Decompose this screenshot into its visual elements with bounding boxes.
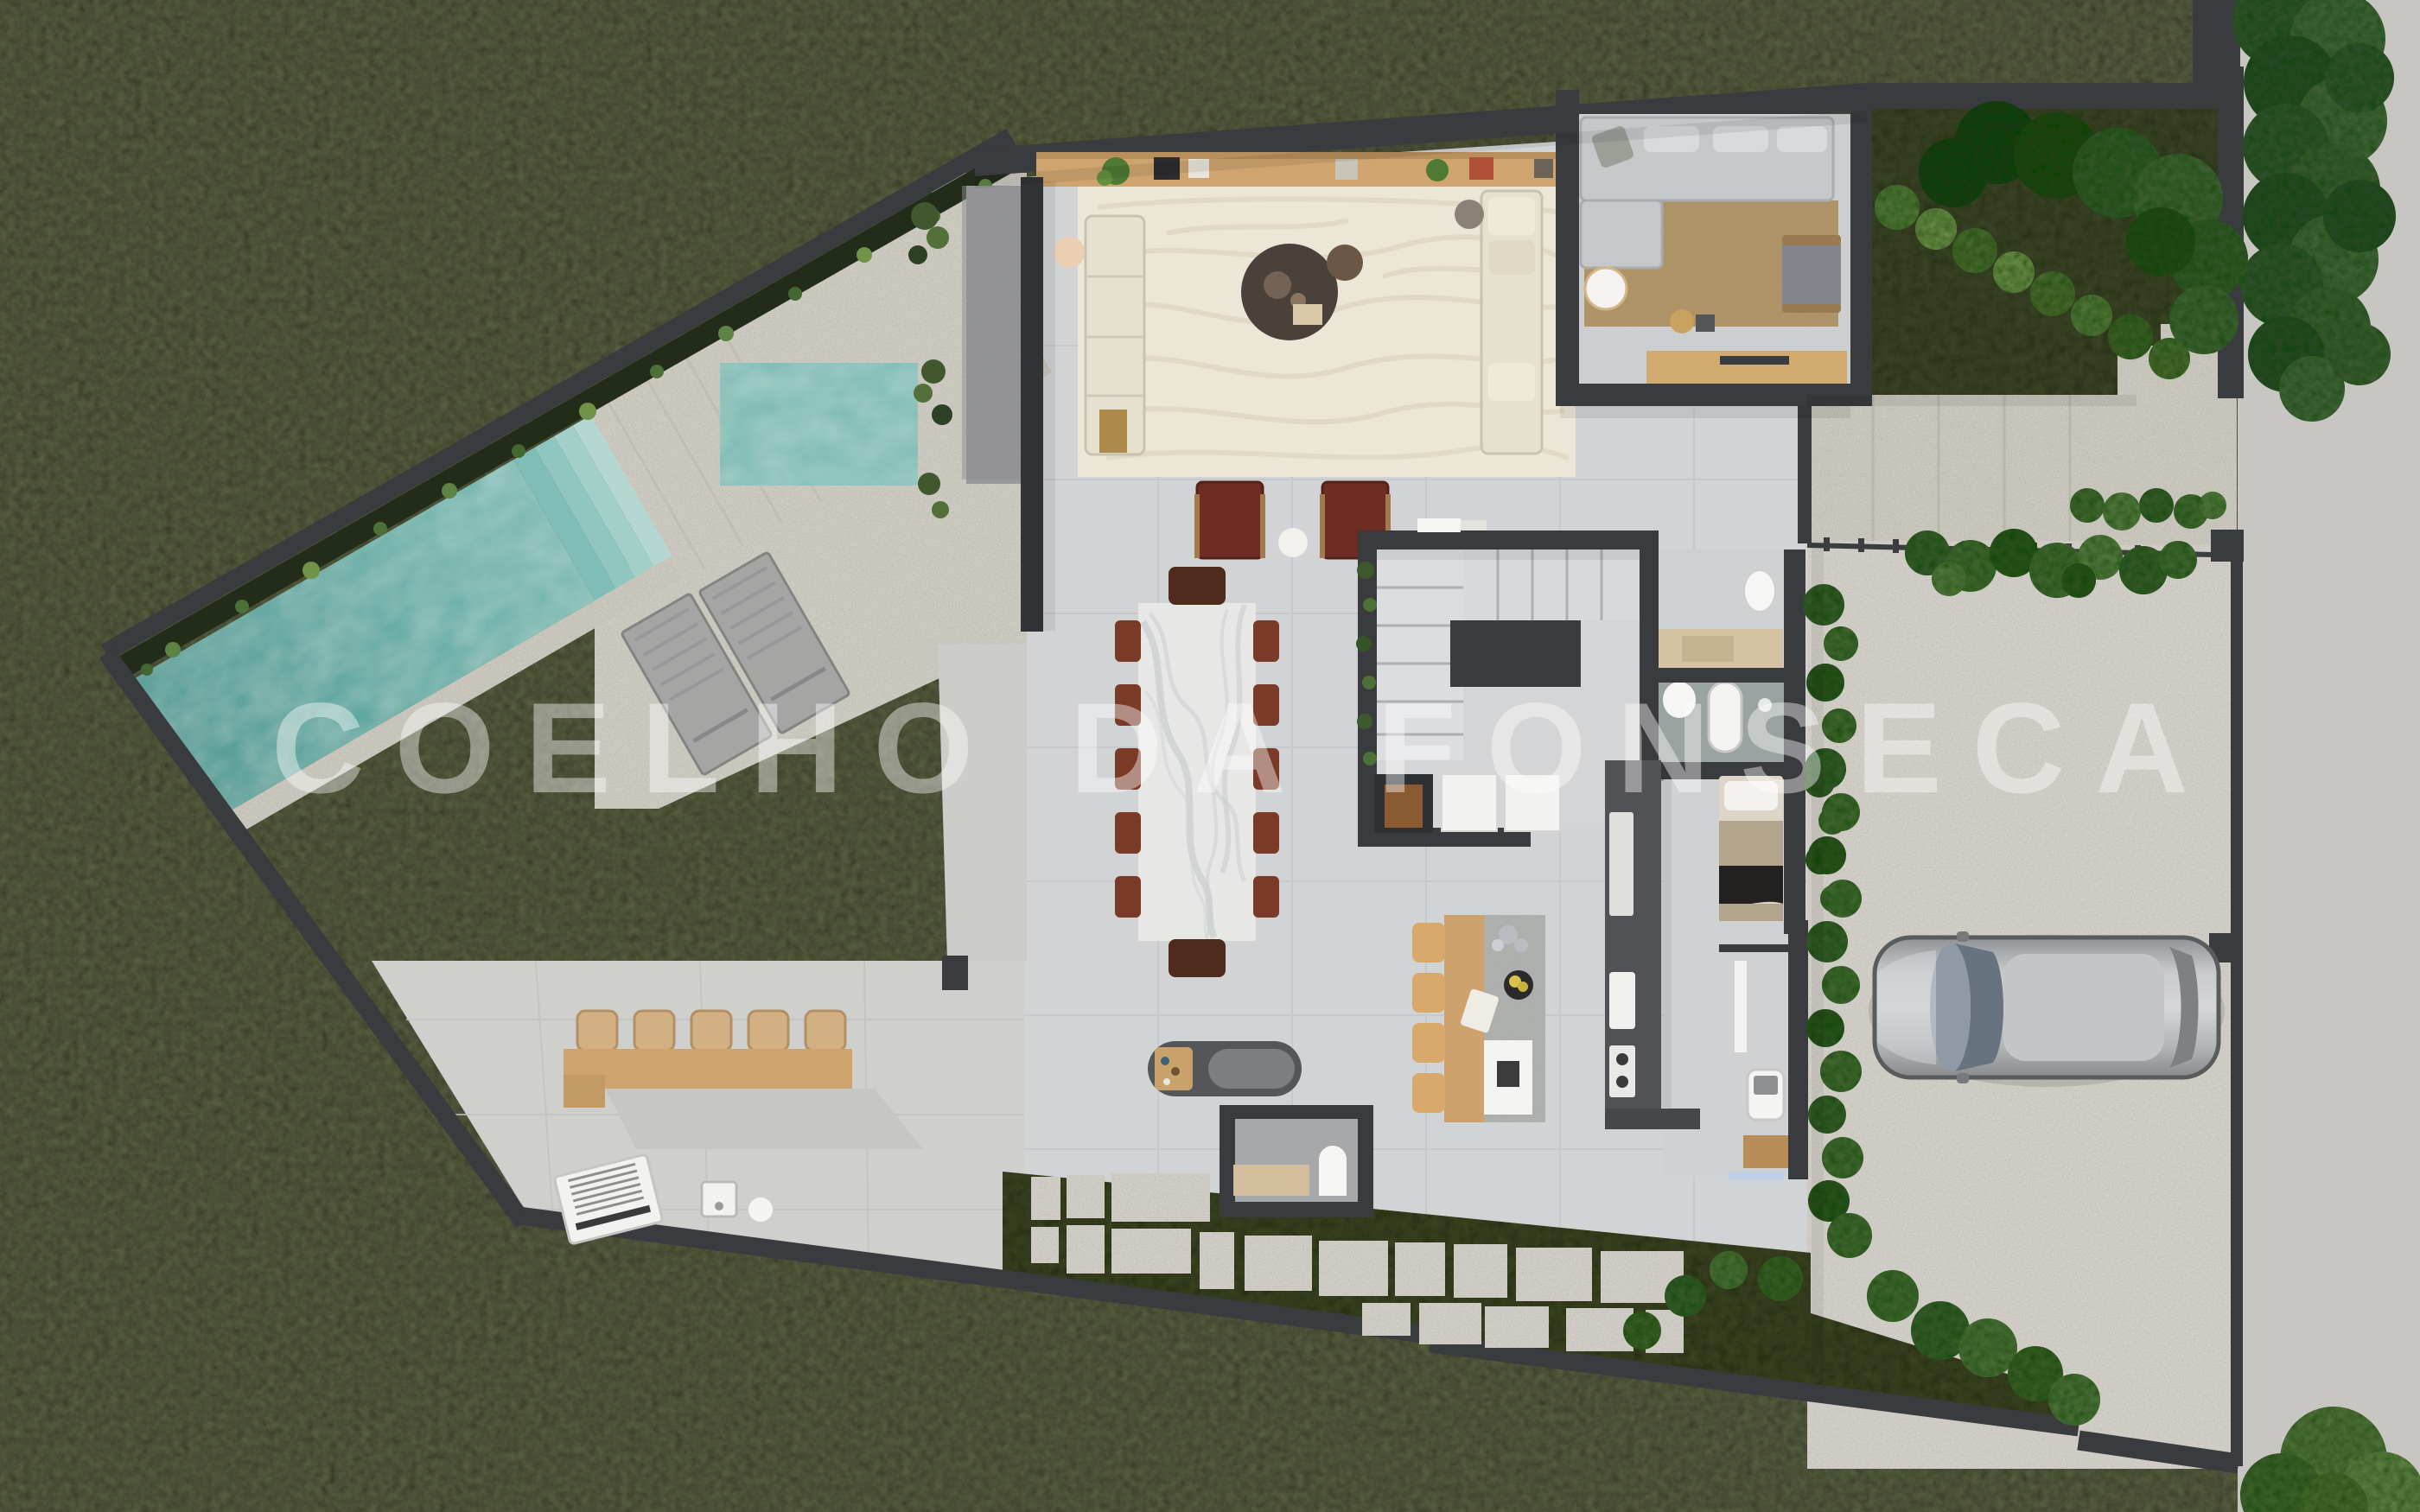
svg-text:COELHO DA FONSECA: COELHO DA FONSECA <box>271 676 2197 820</box>
